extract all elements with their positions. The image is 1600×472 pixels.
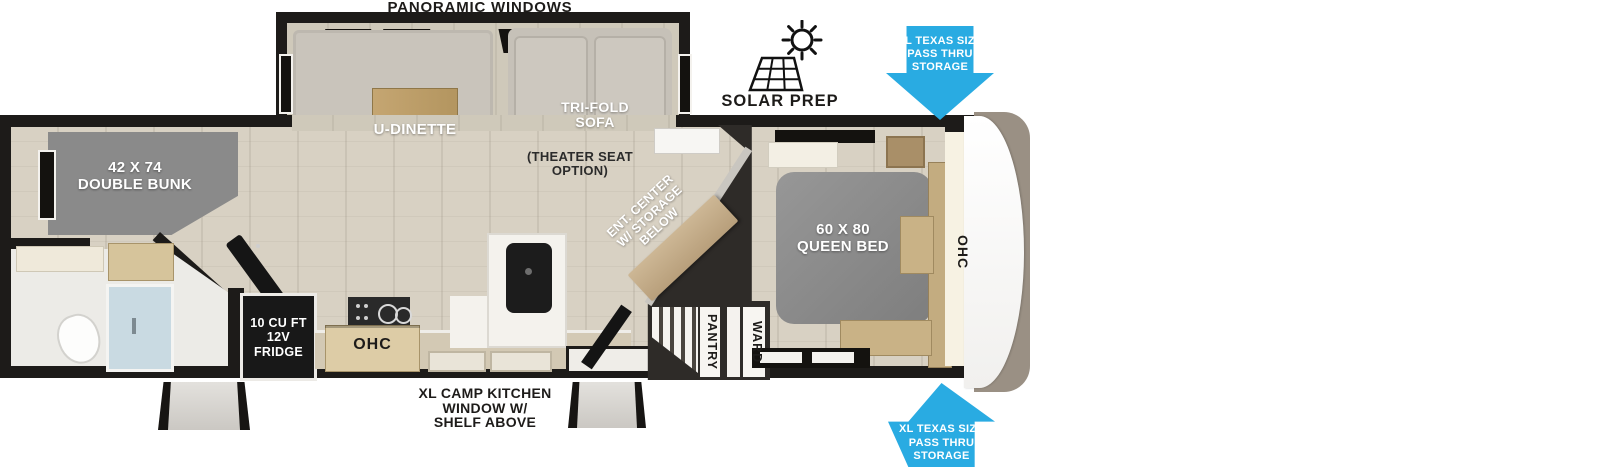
bedroom-ohc-label: OHC bbox=[951, 222, 971, 282]
camp-kitchen-window-icon bbox=[428, 351, 486, 372]
knob-icon bbox=[364, 304, 368, 308]
wardrobe-shelf bbox=[727, 307, 740, 377]
solar-prep-label: SOLAR PREP bbox=[712, 92, 848, 110]
bedroom-overhead-cabinet bbox=[886, 136, 925, 168]
pass-thru-label-bottom: XL TEXAS SIZE PASS THRU STORAGE bbox=[888, 423, 995, 463]
burner-icon bbox=[395, 307, 412, 324]
faucet-icon bbox=[525, 268, 532, 275]
shower bbox=[106, 284, 174, 372]
pantry-label: PANTRY bbox=[701, 309, 719, 375]
queen-bed-label: 60 X 80 QUEEN BED bbox=[778, 222, 908, 255]
entry-step-tread bbox=[577, 382, 637, 428]
kitchen-ohc-label: OHC bbox=[325, 336, 420, 354]
solar-prep-icon bbox=[744, 20, 834, 94]
bedroom-cabinet bbox=[768, 142, 838, 168]
pass-thru-arrow-up-icon: XL TEXAS SIZE PASS THRU STORAGE bbox=[888, 383, 995, 467]
fridge-label: 10 CU FT 12V FRIDGE bbox=[243, 316, 314, 359]
window-pane bbox=[812, 352, 854, 363]
entry-door bbox=[566, 346, 654, 374]
corner-cabinet bbox=[654, 128, 720, 154]
shower-handle-icon bbox=[132, 318, 136, 334]
pass-thru-label-top: XL TEXAS SIZE PASS THRU STORAGE bbox=[886, 35, 994, 75]
panoramic-windows-label: PANORAMIC WINDOWS bbox=[330, 0, 630, 17]
tv-mount-icon bbox=[256, 244, 260, 248]
knob-icon bbox=[356, 304, 360, 308]
entry-step bbox=[568, 382, 646, 428]
knob-icon bbox=[364, 316, 368, 320]
camp-kitchen-window-icon bbox=[490, 351, 552, 372]
u-dinette-label: U-DINETTE bbox=[340, 122, 490, 139]
entry-step-tread bbox=[168, 382, 240, 430]
tri-fold-sofa-label: TRI-FOLD SOFA bbox=[535, 100, 655, 131]
bedroom-window-icon bbox=[752, 348, 870, 368]
knob-icon bbox=[356, 316, 360, 320]
side-window-icon bbox=[279, 54, 293, 114]
kitchen-sink bbox=[506, 243, 552, 313]
theater-seat-option-label: (THEATER SEAT OPTION) bbox=[512, 150, 648, 179]
bath-cabinet bbox=[16, 246, 104, 272]
pass-thru-arrow-down-icon: XL TEXAS SIZE PASS THRU STORAGE bbox=[886, 26, 994, 120]
bath-overhead-cabinet bbox=[108, 243, 174, 281]
floorplan-canvas: XL TEXAS SIZE PASS THRU STORAGE XL TEXAS… bbox=[0, 0, 1600, 472]
entry-step bbox=[158, 382, 250, 430]
ward-label: WARD bbox=[744, 309, 764, 375]
kitchen-wall bbox=[228, 288, 244, 378]
double-bunk-label: 42 X 74 DOUBLE BUNK bbox=[55, 160, 215, 193]
bunk-window-icon bbox=[38, 150, 56, 220]
side-window-icon bbox=[678, 54, 692, 114]
camp-kitchen-label: XL CAMP KITCHEN WINDOW W/ SHELF ABOVE bbox=[395, 386, 575, 430]
window-pane bbox=[760, 352, 802, 363]
